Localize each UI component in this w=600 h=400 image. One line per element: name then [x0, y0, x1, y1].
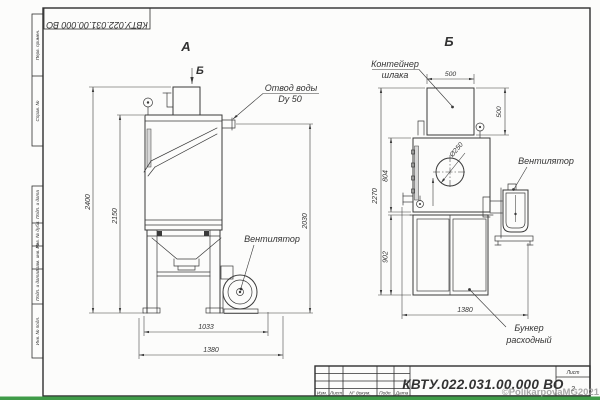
margin-label-podp-data-2: Подп. и дата: [35, 272, 40, 301]
slag-container: [418, 88, 484, 138]
view-a-label: А: [180, 39, 190, 54]
dim-902: 902: [383, 251, 390, 263]
fan-label-a: Вентилятор: [244, 234, 300, 244]
margin-label-sprav-n: Справ. №: [35, 101, 40, 122]
bunker-label-line2: расходный: [505, 335, 551, 345]
watermark-text: ©PolikarpovaMG2021: [502, 387, 600, 398]
cyclone-body: [403, 138, 493, 215]
stand-and-hopper: [143, 230, 223, 313]
margin-label-vzam-inv: Взам. инв. №: [35, 243, 40, 271]
view-a-section-callout: Б: [196, 65, 204, 77]
margin-label-inv-podl: Инв. № подл.: [35, 317, 40, 346]
dim-2030: 2030: [302, 213, 309, 230]
dim-1380-a: 1380: [203, 347, 219, 354]
dim-804: 804: [383, 170, 390, 182]
bunker-label-line1: Бункер: [514, 323, 543, 333]
bottom-green-bar: [0, 397, 600, 400]
titleblock-col-docnum: N° докум.: [349, 391, 370, 397]
titleblock-col-list: Лист: [329, 391, 342, 397]
dims-view-a: 2400 2150 2030 1033 1380: [85, 87, 313, 359]
titleblock-sheet-label: Лист: [566, 370, 580, 376]
view-a: А Б: [85, 39, 319, 359]
dim-2400: 2400: [85, 194, 92, 211]
water-outlet-label-line2: Dy 50: [278, 94, 302, 104]
margin-label-podp-data-1: Подп. и дата: [35, 190, 40, 219]
titleblock-col-izm: Изм.: [317, 391, 327, 397]
view-b-label: Б: [444, 34, 453, 49]
water-outlet-label-line1: Отвод воды: [265, 83, 318, 93]
dim-1033: 1033: [198, 324, 214, 331]
dim-500-height: 500: [496, 106, 503, 118]
margin-label-perv-primen: Перв. примен.: [35, 30, 40, 61]
bunker-lower: [413, 215, 488, 295]
top-stamp-code: КВТУ.022.031.00.000 ВО: [46, 20, 148, 30]
dim-1380-b: 1380: [457, 307, 473, 314]
fan-label-b: Вентилятор: [518, 156, 574, 166]
dim-2270: 2270: [372, 188, 379, 205]
dim-2150: 2150: [112, 208, 119, 225]
container-label-line2: шлака: [382, 70, 409, 80]
container-label-line1: Контейнер: [371, 59, 419, 69]
view-b: Б Контейнер шлака: [371, 34, 574, 345]
tank-outline: [144, 87, 236, 230]
fan-front: [221, 266, 258, 314]
dim-hole-diameter: Ø250: [448, 141, 465, 159]
dim-500-width: 500: [445, 71, 457, 78]
drawing-sheet: КВТУ.022.031.00.000 ВО Перв. примен. Спр…: [0, 0, 600, 400]
titleblock-col-podp: Подп.: [379, 391, 392, 397]
